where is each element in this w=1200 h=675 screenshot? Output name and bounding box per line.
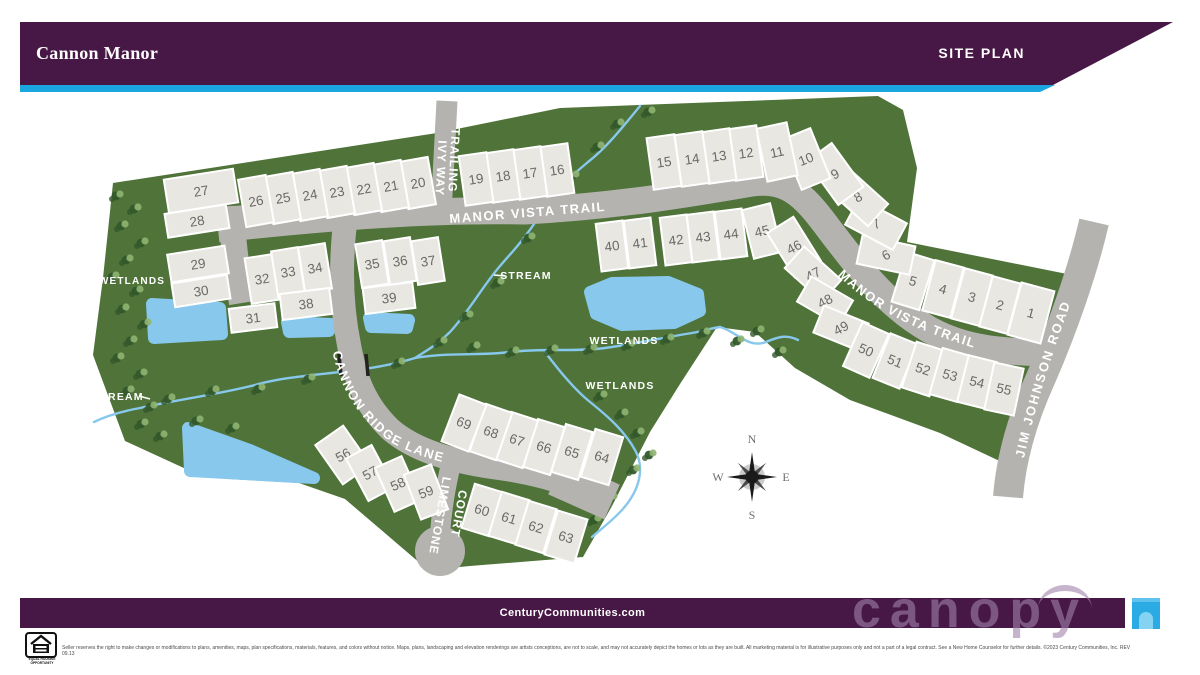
tree-icon xyxy=(232,422,239,429)
tree-icon xyxy=(189,421,195,427)
tree-icon xyxy=(466,347,472,353)
tree-icon xyxy=(572,170,579,177)
lot-number: 22 xyxy=(355,181,372,198)
lot-number: 24 xyxy=(301,186,319,203)
tree-icon xyxy=(528,232,535,239)
tree-icon xyxy=(115,309,121,315)
tree-icon xyxy=(649,449,656,456)
tree-icon xyxy=(119,260,125,266)
lot-38: 38 xyxy=(280,288,333,320)
tree-icon xyxy=(590,147,596,153)
tree-icon xyxy=(153,436,159,442)
equal-housing-caption: EQUAL HOUSING OPPORTUNITY xyxy=(25,657,59,665)
tree-icon xyxy=(133,374,139,380)
tree-icon xyxy=(544,350,550,356)
tree-icon xyxy=(597,141,604,148)
lot-number: 16 xyxy=(549,162,566,179)
tree-icon xyxy=(641,112,647,118)
lot-number: 18 xyxy=(495,168,512,185)
tree-icon xyxy=(141,237,148,244)
tree-icon xyxy=(134,424,140,430)
tree-icon xyxy=(696,333,702,339)
tree-icon xyxy=(667,333,674,340)
lot-number: 42 xyxy=(668,232,685,249)
tree-icon xyxy=(512,346,519,353)
tree-icon xyxy=(129,291,135,297)
tree-icon xyxy=(110,358,116,364)
lot-number: 34 xyxy=(306,260,324,277)
wetlands-label: WETLANDS xyxy=(589,335,658,347)
tree-icon xyxy=(141,418,148,425)
tree-icon xyxy=(391,363,397,369)
site-plan-svg: 1234567891011121314151617181920212223242… xyxy=(0,0,1200,675)
pond-3 xyxy=(369,318,409,328)
tree-icon xyxy=(196,415,203,422)
lot-number: 29 xyxy=(189,256,206,273)
pond-5 xyxy=(590,282,700,325)
lot-19: 19 xyxy=(459,152,494,205)
compass-south-label: S xyxy=(749,508,756,522)
tree-icon xyxy=(633,464,640,471)
tree-icon xyxy=(161,399,167,405)
lot-number: 27 xyxy=(192,183,209,200)
lot-34: 34 xyxy=(298,243,332,293)
lot-number: 26 xyxy=(247,193,264,210)
pond-1 xyxy=(152,304,222,338)
culvert-mark xyxy=(366,354,368,376)
tree-icon xyxy=(440,336,447,343)
lot-number: 30 xyxy=(192,283,209,300)
tree-icon xyxy=(134,243,140,249)
tree-icon xyxy=(642,455,648,461)
lot-40: 40 xyxy=(596,221,629,272)
canopy-logo-square xyxy=(1132,598,1160,629)
lot-number: 55 xyxy=(995,380,1013,398)
tree-icon xyxy=(617,118,624,125)
lot-number: 39 xyxy=(381,290,398,307)
lot-number: 32 xyxy=(253,271,270,288)
tree-icon xyxy=(168,393,175,400)
lot-number: 38 xyxy=(298,296,315,313)
lot-15: 15 xyxy=(647,134,682,189)
tree-icon xyxy=(258,383,265,390)
tree-icon xyxy=(123,341,129,347)
tree-icon xyxy=(114,226,120,232)
lot-number: 40 xyxy=(604,238,621,255)
tree-icon xyxy=(466,310,473,317)
compass-rose: NSWE xyxy=(712,432,789,522)
tree-icon xyxy=(134,203,141,210)
lot-number: 23 xyxy=(328,184,345,201)
lot-number: 25 xyxy=(274,190,291,207)
tree-icon xyxy=(433,342,439,348)
lot-number: 44 xyxy=(723,226,740,243)
tree-icon xyxy=(301,379,307,385)
lot-number: 20 xyxy=(409,175,426,192)
tree-icon xyxy=(490,283,496,289)
tree-icon xyxy=(225,428,231,434)
compass-west-label: W xyxy=(712,470,724,484)
tree-icon xyxy=(505,352,511,358)
stream-label: STREAM xyxy=(500,270,552,282)
tree-icon xyxy=(737,335,744,342)
lot-39: 39 xyxy=(363,282,416,314)
lot-number: 13 xyxy=(711,148,728,165)
tree-icon xyxy=(121,220,128,227)
lot-number: 37 xyxy=(419,253,436,270)
tree-icon xyxy=(212,385,219,392)
tree-icon xyxy=(122,303,129,310)
tree-icon xyxy=(205,391,211,397)
tree-icon xyxy=(703,327,710,334)
tree-icon xyxy=(109,196,115,202)
tree-icon xyxy=(779,346,786,353)
lot-number: 19 xyxy=(468,171,485,188)
tree-icon xyxy=(583,349,589,355)
lot-number: 41 xyxy=(632,235,649,252)
wetlands-label: WETLANDS xyxy=(99,276,165,287)
tree-icon xyxy=(137,324,143,330)
tree-icon xyxy=(551,344,558,351)
tree-icon xyxy=(730,341,736,347)
label-pointer-dash xyxy=(494,275,505,276)
tree-icon xyxy=(308,373,315,380)
road-access-stub xyxy=(231,206,242,303)
canopy-logo-glyph-icon xyxy=(1132,598,1160,629)
lot-number: 33 xyxy=(279,264,296,281)
lot-number: 15 xyxy=(656,154,673,171)
lot-number: 35 xyxy=(363,256,380,273)
equal-housing-logo-icon xyxy=(25,632,59,658)
tree-icon xyxy=(630,433,636,439)
tree-icon xyxy=(660,339,666,345)
tree-icon xyxy=(251,389,257,395)
lot-number: 12 xyxy=(738,145,755,162)
lot-37: 37 xyxy=(411,237,445,285)
tree-icon xyxy=(648,106,655,113)
tree-icon xyxy=(772,352,778,358)
lot-number: 14 xyxy=(684,151,701,168)
tree-icon xyxy=(757,325,764,332)
tree-icon xyxy=(127,209,133,215)
pond-2 xyxy=(287,322,331,332)
tree-icon xyxy=(610,124,616,130)
lot-number: 31 xyxy=(245,310,262,327)
tree-icon xyxy=(621,408,628,415)
tree-icon xyxy=(143,407,149,413)
lot-43: 43 xyxy=(687,212,720,263)
lot-number: 36 xyxy=(391,253,408,270)
trailing-ivy-way-label-2: IVY WAY xyxy=(433,140,450,196)
lot-number: 17 xyxy=(522,165,539,182)
tree-icon xyxy=(126,254,133,261)
stream-label: STREAM xyxy=(92,391,144,403)
legal-disclaimer: Seller reserves the right to make change… xyxy=(62,645,1132,657)
tree-icon xyxy=(459,316,465,322)
tree-icon xyxy=(614,414,620,420)
tree-icon xyxy=(473,341,480,348)
lot-number: 43 xyxy=(695,229,712,246)
tree-icon xyxy=(398,357,405,364)
tree-icon xyxy=(140,368,147,375)
tree-icon xyxy=(521,238,527,244)
tree-icon xyxy=(150,401,157,408)
lot-41: 41 xyxy=(624,218,657,269)
tree-icon xyxy=(637,427,644,434)
tree-icon xyxy=(160,430,167,437)
site-plan-page: Cannon Manor SITE PLAN 12345678910111213… xyxy=(0,0,1200,675)
tree-icon xyxy=(593,396,599,402)
tree-icon xyxy=(626,470,632,476)
lot-number: 28 xyxy=(188,213,205,230)
tree-icon xyxy=(144,318,151,325)
tree-icon xyxy=(116,190,123,197)
wetlands-label: WETLANDS xyxy=(585,380,654,392)
tree-icon xyxy=(130,335,137,342)
tree-cluster-icon xyxy=(642,449,657,461)
compass-east-label: E xyxy=(782,470,789,484)
tree-icon xyxy=(117,352,124,359)
tree-cluster-icon xyxy=(730,335,745,347)
lot-31: 31 xyxy=(229,303,278,332)
tree-icon xyxy=(750,331,756,337)
compass-north-label: N xyxy=(748,432,757,446)
lot-number: 21 xyxy=(382,178,399,195)
compass-hub xyxy=(746,471,759,484)
